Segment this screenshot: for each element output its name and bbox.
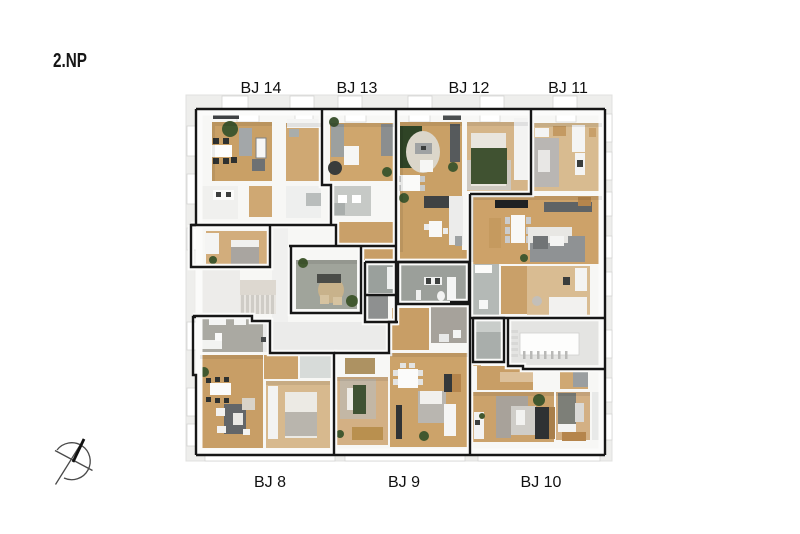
svg-text:BJ 12: BJ 12 [449,80,490,97]
svg-text:BJ 13: BJ 13 [337,80,378,97]
svg-text:BJ 8: BJ 8 [254,474,286,491]
svg-text:BJ 10: BJ 10 [521,474,562,491]
svg-text:BJ 9: BJ 9 [388,474,420,491]
svg-text:BJ 14: BJ 14 [241,80,282,97]
svg-text:2.NP: 2.NP [53,50,87,72]
svg-text:BJ 11: BJ 11 [548,80,588,97]
